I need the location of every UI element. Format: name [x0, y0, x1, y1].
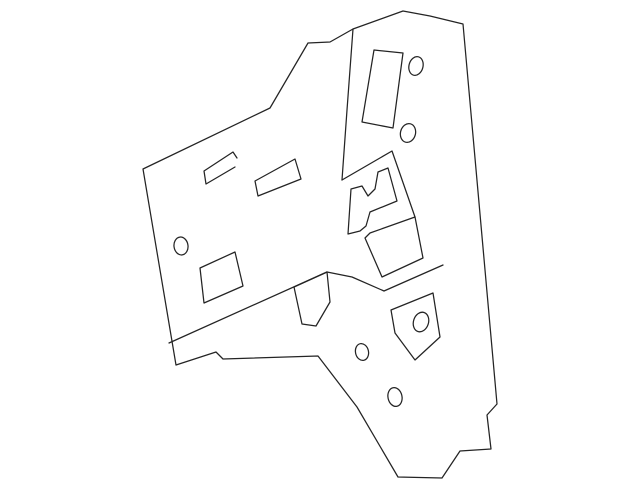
access-rectangle [200, 252, 243, 303]
diagram-canvas [0, 0, 640, 489]
window-cutout [362, 50, 403, 128]
panel-outline [143, 11, 497, 478]
striker-pentagon [391, 293, 440, 360]
lower-tab [294, 272, 330, 326]
hole-bottom [386, 386, 404, 407]
hole-top-right [407, 55, 425, 77]
fold-line [342, 29, 353, 180]
vent-parallelogram [255, 159, 301, 196]
latch-bracket [348, 168, 397, 234]
hook-bracket [204, 152, 237, 184]
hole-lower-left [354, 342, 370, 361]
hole-upper-mid [398, 122, 417, 144]
flag-line [342, 151, 415, 217]
part-diagram-svg [0, 0, 640, 489]
hole-left [173, 236, 189, 256]
latch-face [365, 217, 423, 277]
notch-line [327, 265, 443, 291]
hole-pentagon [411, 310, 431, 334]
